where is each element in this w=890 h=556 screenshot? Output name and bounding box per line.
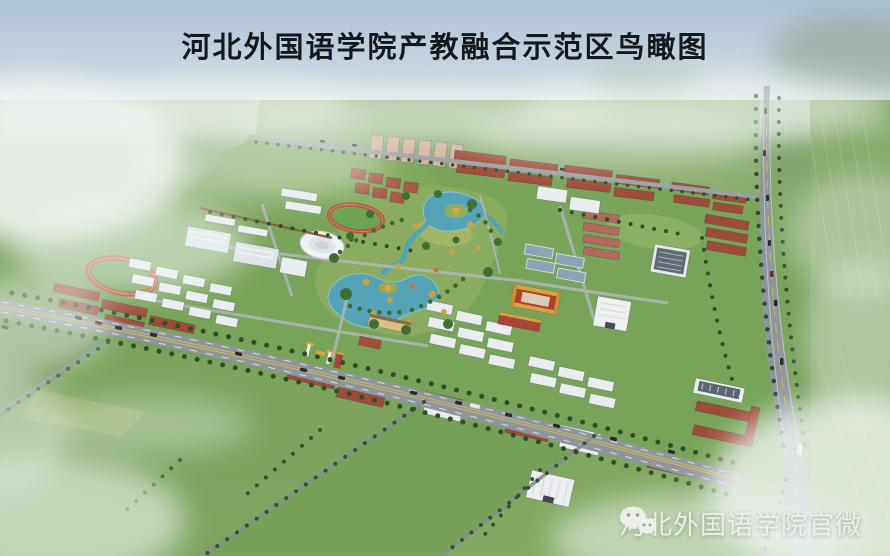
wechat-icon — [619, 505, 657, 538]
aerial-rendering-image: 河北外国语学院产教融合示范区鸟瞰图 河北外国语学院官微 — [0, 0, 890, 556]
office-slab-building — [650, 244, 690, 278]
page-title: 河北外国语学院产教融合示范区鸟瞰图 — [0, 24, 890, 66]
scene-canvas — [0, 0, 890, 556]
east-red-buildings — [700, 214, 751, 256]
white-box-building — [593, 296, 632, 331]
gold-pavilion — [385, 285, 391, 291]
watermark: 河北外国语学院官微 — [619, 505, 862, 542]
gold-pavilion — [453, 208, 460, 215]
